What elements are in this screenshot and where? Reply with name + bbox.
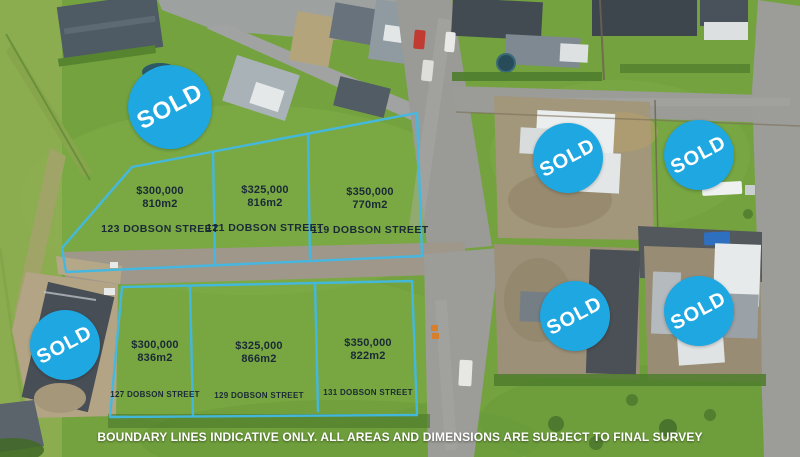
sold-badge: SOLD (664, 120, 734, 190)
lot-address: 119 DOBSON STREET (305, 224, 435, 237)
lot-label: $350,000 770m2 119 DOBSON STREET (305, 186, 435, 237)
lot-price: $300,000 (131, 339, 178, 351)
lot-area: 816m2 (247, 197, 282, 209)
lot-area: 810m2 (142, 198, 177, 210)
disclaimer-banner: BOUNDARY LINES INDICATIVE ONLY. ALL AREA… (0, 430, 800, 444)
lot-price: $325,000 (235, 340, 282, 352)
sold-badge: SOLD (540, 281, 610, 351)
lot-price: $300,000 (136, 185, 183, 197)
lot-area: 836m2 (137, 352, 172, 364)
lot-area: 770m2 (352, 199, 387, 211)
sold-badge: SOLD (128, 65, 212, 149)
sold-badge: SOLD (533, 123, 603, 193)
lot-address: 131 DOBSON STREET (303, 386, 433, 399)
lot-price: $325,000 (241, 184, 288, 196)
lot-area: 822m2 (350, 350, 385, 362)
lot-price: $350,000 (346, 186, 393, 198)
aerial-subdivision-photo: $300,000 810m2 123 DOBSON STREET $325,00… (0, 0, 800, 457)
sold-badge: SOLD (664, 276, 734, 346)
lot-price: $350,000 (344, 337, 391, 349)
sold-badge: SOLD (30, 310, 100, 380)
lot-label: $350,000 822m2 131 DOBSON STREET (303, 337, 433, 399)
lot-area: 866m2 (241, 353, 276, 365)
